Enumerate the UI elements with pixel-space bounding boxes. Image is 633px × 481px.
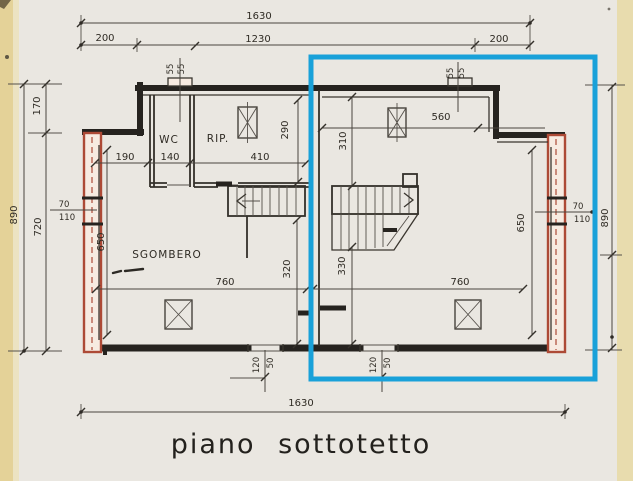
dim-gap-left: 190 — [115, 152, 134, 163]
dim-bottom-total: 1630 — [288, 398, 313, 409]
scan-edge-left-inner — [13, 0, 19, 481]
dim-right-inner: 650 — [516, 213, 527, 232]
dim-wc-width: 140 — [160, 152, 179, 163]
room-label-rip: RIP. — [207, 133, 229, 145]
dim-opening-left-w: 120 — [252, 357, 262, 373]
dim-tr-height: 310 — [338, 131, 349, 150]
dim-chimney-left-b: 55 — [177, 64, 187, 75]
dim-right-wall-a: 70 — [573, 202, 584, 212]
room-label-sgombero: SGOMBERO — [132, 249, 202, 261]
dim-stair-left: 320 — [282, 259, 293, 278]
dim-chimney-left-a: 55 — [166, 64, 176, 75]
floor-plan-scan: 1630 200 1230 200 170 890 720 650 70 110… — [0, 0, 633, 481]
dim-br-width: 760 — [450, 277, 469, 288]
room-label-wc: WC — [159, 134, 179, 146]
drawing-caption: piano sottotetto — [171, 429, 432, 460]
dim-top-mid: 1230 — [245, 34, 270, 45]
dim-left-total: 890 — [9, 205, 20, 224]
dim-left-upper: 170 — [32, 96, 43, 115]
dim-left-wall-b: 110 — [59, 213, 75, 223]
dim-rip-width: 410 — [250, 152, 269, 163]
dim-opening-right-w: 120 — [369, 357, 379, 373]
floor-plan-svg: 1630 200 1230 200 170 890 720 650 70 110… — [0, 0, 633, 481]
scan-speck — [5, 55, 9, 59]
dim-opening-left-jamb: 50 — [266, 358, 276, 369]
dim-top-left: 200 — [95, 33, 114, 44]
dim-top-total: 1630 — [246, 11, 271, 22]
scan-speck-2 — [608, 8, 611, 11]
dim-left-lower: 720 — [33, 217, 44, 236]
dim-rip-height: 290 — [280, 120, 291, 139]
dim-chimney-right-b: 55 — [457, 68, 467, 79]
scan-edge-right — [617, 0, 633, 481]
dim-stair-right: 330 — [337, 256, 348, 275]
dim-tr-width: 560 — [431, 112, 450, 123]
dim-left-inner: 650 — [96, 232, 107, 251]
dim-left-wall-a: 70 — [59, 200, 70, 210]
dim-bl-width: 760 — [215, 277, 234, 288]
dim-opening-right-jamb: 50 — [383, 358, 393, 369]
dim-right-wall-b: 110 — [574, 215, 590, 225]
dim-right-total: 890 — [600, 208, 611, 227]
dim-top-right: 200 — [489, 34, 508, 45]
dim-chimney-right-a: 55 — [446, 68, 456, 79]
